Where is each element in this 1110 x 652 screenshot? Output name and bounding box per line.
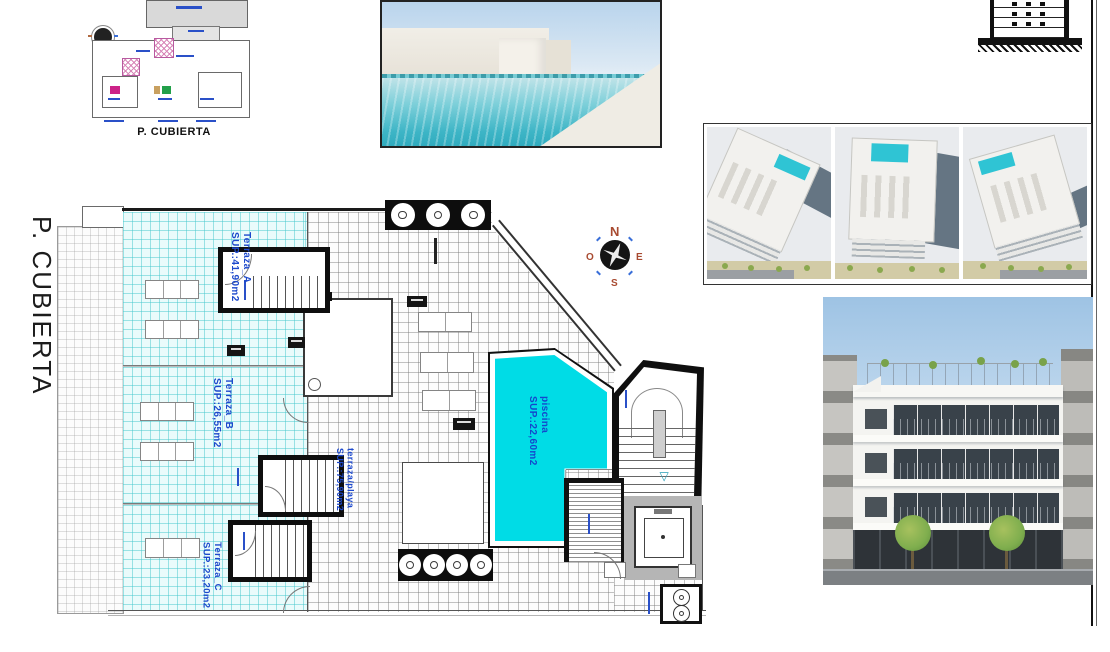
pergola-structure	[402, 462, 484, 544]
key-annotation-mark	[158, 120, 178, 122]
lounger-pair	[420, 352, 474, 373]
machine-fan	[673, 605, 690, 622]
aerial-roof-walls	[860, 175, 914, 219]
aerial-pool	[774, 154, 811, 181]
section-body	[990, 0, 1069, 38]
service-room-hatched	[564, 478, 624, 562]
terraza-a-area-text: SUP.:41,90m2	[228, 232, 240, 392]
terraza-c-name: Terraza_C	[211, 542, 222, 652]
aerial-street	[707, 270, 794, 279]
facade-neighbor-left	[823, 355, 857, 571]
pool-label: piscina SUP.:22,60m2	[526, 396, 550, 526]
machine-box	[660, 584, 702, 624]
aerial-building-mass	[848, 138, 938, 243]
key-compass-tick	[88, 35, 92, 37]
facade-ground-floor	[853, 530, 1063, 570]
facade-roof-slab	[853, 385, 1063, 397]
key-unit-outline	[102, 76, 138, 108]
section-window-marks	[1012, 2, 1017, 6]
plan-right-line	[702, 505, 703, 611]
plan-bottom-line-2	[108, 615, 706, 616]
terraza-c-label: Terraza_C SUP.:23,20m2	[200, 542, 223, 652]
skylight-circle	[446, 554, 468, 576]
page-title: P. CUBIERTA	[26, 216, 57, 416]
terraza-b-name: Terraza_B	[222, 378, 234, 508]
lounger-pair	[422, 390, 476, 411]
skylight-circle	[426, 203, 450, 227]
plan-bottom-line	[108, 610, 706, 611]
sheet-border-line-2	[1096, 0, 1097, 626]
facade-street	[823, 569, 1093, 585]
section-ground-hatch	[978, 45, 1082, 52]
stair-annotation-mark	[588, 514, 590, 534]
facade-slab	[853, 523, 1063, 530]
stair-direction-arrow: ▽	[660, 470, 669, 482]
compass-needle	[598, 238, 632, 272]
compass-rose: N E S O	[586, 224, 644, 290]
key-unit-chip-tan	[154, 86, 160, 94]
street-tree-crown	[895, 515, 931, 551]
stair-landing-arc	[235, 531, 256, 556]
compass-tick	[628, 271, 633, 276]
stair-terraza-c	[228, 520, 312, 582]
compass-rose-icon	[600, 240, 630, 270]
key-patio-hatch	[154, 38, 174, 58]
skylight-circle	[461, 203, 485, 227]
aerial-render-1	[707, 127, 831, 279]
facade-railing	[893, 463, 1059, 480]
pool-photo-render	[380, 0, 662, 148]
playa-area-text: SUP.:75,90m2	[334, 448, 345, 578]
aerial-facade-strip	[852, 239, 925, 260]
compass-tick	[596, 271, 601, 276]
key-unit-chip-magenta	[110, 86, 120, 94]
stair-annotation-mark	[243, 532, 245, 550]
stair-annotation-mark	[625, 390, 627, 408]
section-base	[978, 38, 1082, 45]
terraza-b-area-text: SUP.:26,55m2	[210, 378, 222, 508]
key-annotation-mark	[176, 6, 202, 9]
facade-slab	[853, 479, 1063, 486]
lounger	[145, 280, 199, 299]
lounger	[145, 538, 200, 558]
facade-roof-plants	[881, 359, 889, 367]
key-annotation-mark	[176, 55, 194, 57]
elevator-cab-dot	[661, 535, 665, 539]
key-plan: P. CUBIERTA	[80, 0, 315, 145]
compass-tick	[628, 237, 633, 242]
plan-label-chip	[288, 337, 305, 348]
plan-top-wall	[122, 208, 392, 211]
key-annotation-mark	[188, 30, 204, 32]
plan-label-chip	[453, 418, 475, 430]
lounger	[140, 402, 194, 421]
key-unit-chip-green	[162, 86, 171, 94]
machine-fan	[673, 589, 690, 606]
stair-terraza-b	[258, 455, 344, 517]
terrace-divider-ab	[123, 365, 308, 367]
aerial-building-mass	[707, 128, 821, 253]
elevator-doors	[654, 509, 672, 514]
terraza-b-label: Terraza_B SUP.:26,55m2	[210, 378, 234, 508]
key-annotation-mark	[108, 98, 120, 100]
key-annotation-mark	[104, 120, 124, 122]
compass-tick	[596, 237, 601, 242]
compass-north-label: N	[610, 224, 619, 239]
skylight-circle	[399, 554, 421, 576]
stair-core-inner: ▽	[619, 367, 697, 501]
key-compass-tick	[114, 35, 118, 37]
aerial-roof-walls	[718, 162, 782, 218]
stair-treads	[253, 276, 325, 308]
service-furniture	[678, 564, 696, 578]
pool-name: piscina	[538, 396, 550, 526]
plan-left-walkway	[57, 226, 124, 614]
aerial-building-mass	[969, 135, 1080, 249]
stair-core-spine	[653, 410, 666, 458]
stair-landing-arc	[265, 486, 286, 511]
key-patio-hatch	[122, 58, 140, 76]
lounger	[140, 442, 194, 461]
facade-slab	[853, 435, 1063, 442]
skylight-circle	[470, 554, 492, 576]
skylight-circle	[391, 203, 415, 227]
key-annotation-mark	[200, 98, 214, 100]
stair-core: ▽	[612, 360, 704, 508]
terraza-a-name: Terraza_A	[240, 232, 252, 392]
lounger-pair	[418, 312, 472, 332]
building-section-sketch	[978, 0, 1082, 52]
skylight-band-top	[385, 200, 491, 230]
compass-east-label: E	[636, 252, 643, 263]
stair-annotation-mark	[237, 468, 239, 486]
key-annotation-mark	[136, 50, 150, 52]
facade-render	[823, 297, 1093, 585]
plan-left-step	[82, 206, 124, 228]
plan-label-chip	[407, 296, 427, 307]
aerial-render-3	[963, 127, 1087, 279]
aerial-ground	[835, 263, 959, 279]
key-annotation-mark	[158, 98, 172, 100]
key-building-top	[146, 0, 248, 28]
lounger	[145, 320, 199, 339]
terraza-a-label: Terraza_A SUP.:41,90m2	[228, 232, 252, 392]
playa-name: terraza/playa	[345, 448, 356, 578]
aerial-facade-strip	[996, 224, 1083, 262]
elevator-inner	[634, 506, 692, 568]
pool-area: SUP.:22,60m2	[526, 396, 538, 526]
aerial-renders-box	[703, 123, 1092, 285]
facade-neighbor-right	[1061, 349, 1093, 571]
key-plan-caption: P. CUBIERTA	[114, 126, 234, 138]
terraza-c-area-text: SUP.:23,20m2	[200, 542, 211, 652]
aerial-render-2	[835, 127, 959, 279]
aerial-street	[1000, 270, 1087, 279]
stair-annotation-mark	[648, 592, 650, 614]
skylight-circle	[423, 554, 445, 576]
aerial-roof-walls	[991, 172, 1052, 223]
aerial-pool	[978, 152, 1015, 176]
facade-pier-window	[865, 409, 887, 429]
plan-tiny-note	[434, 238, 437, 264]
compass-south-label: S	[611, 278, 618, 289]
facade-window-band	[893, 405, 1059, 435]
stair-treads	[255, 525, 307, 577]
key-annotation-mark	[196, 120, 216, 122]
facade-window-band	[893, 449, 1059, 479]
key-unit-outline	[198, 72, 242, 108]
aerial-tree-dots	[722, 263, 728, 269]
stair-treads	[285, 460, 339, 512]
aerial-pool	[870, 143, 908, 162]
street-tree-crown	[989, 515, 1025, 551]
roof-room-corner-post	[308, 378, 321, 391]
compass-west-label: O	[586, 252, 594, 263]
facade-railing	[893, 419, 1059, 436]
aerial-facade-strip	[707, 215, 782, 265]
drawing-sheet: P. CUBIERTA P. CUBIERTA	[0, 0, 1110, 626]
skylight-band-bottom	[398, 549, 493, 581]
playa-label: terraza/playa SUP.:75,90m2	[334, 448, 356, 578]
